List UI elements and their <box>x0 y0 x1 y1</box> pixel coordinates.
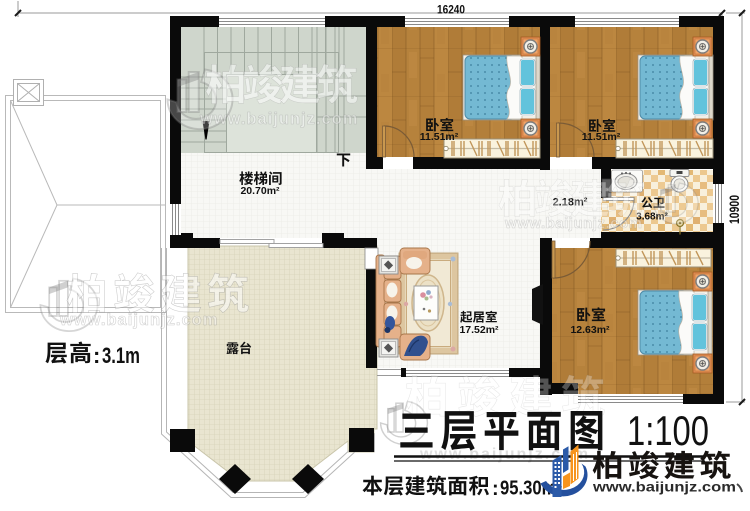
svg-text:11.51m²: 11.51m² <box>582 131 621 143</box>
svg-text:www.baijunjz.com: www.baijunjz.com <box>199 110 358 128</box>
svg-text:16240: 16240 <box>437 3 465 17</box>
svg-text:11.51m²: 11.51m² <box>420 131 459 143</box>
svg-text:20.70m²: 20.70m² <box>240 185 280 197</box>
svg-text::: : <box>93 343 100 368</box>
svg-text:10900: 10900 <box>727 195 742 224</box>
svg-text:www.baijunjz.com: www.baijunjz.com <box>59 311 218 329</box>
svg-text:17.52m²: 17.52m² <box>459 324 499 336</box>
svg-text:www.baijunjz.com: www.baijunjz.com <box>592 479 736 495</box>
svg-text:3.1m: 3.1m <box>102 343 140 368</box>
svg-text:1:100: 1:100 <box>627 407 709 454</box>
svg-text:12.63m²: 12.63m² <box>570 324 610 336</box>
svg-text:www.baijunjz.com: www.baijunjz.com <box>504 215 642 232</box>
svg-text::: : <box>492 478 499 500</box>
